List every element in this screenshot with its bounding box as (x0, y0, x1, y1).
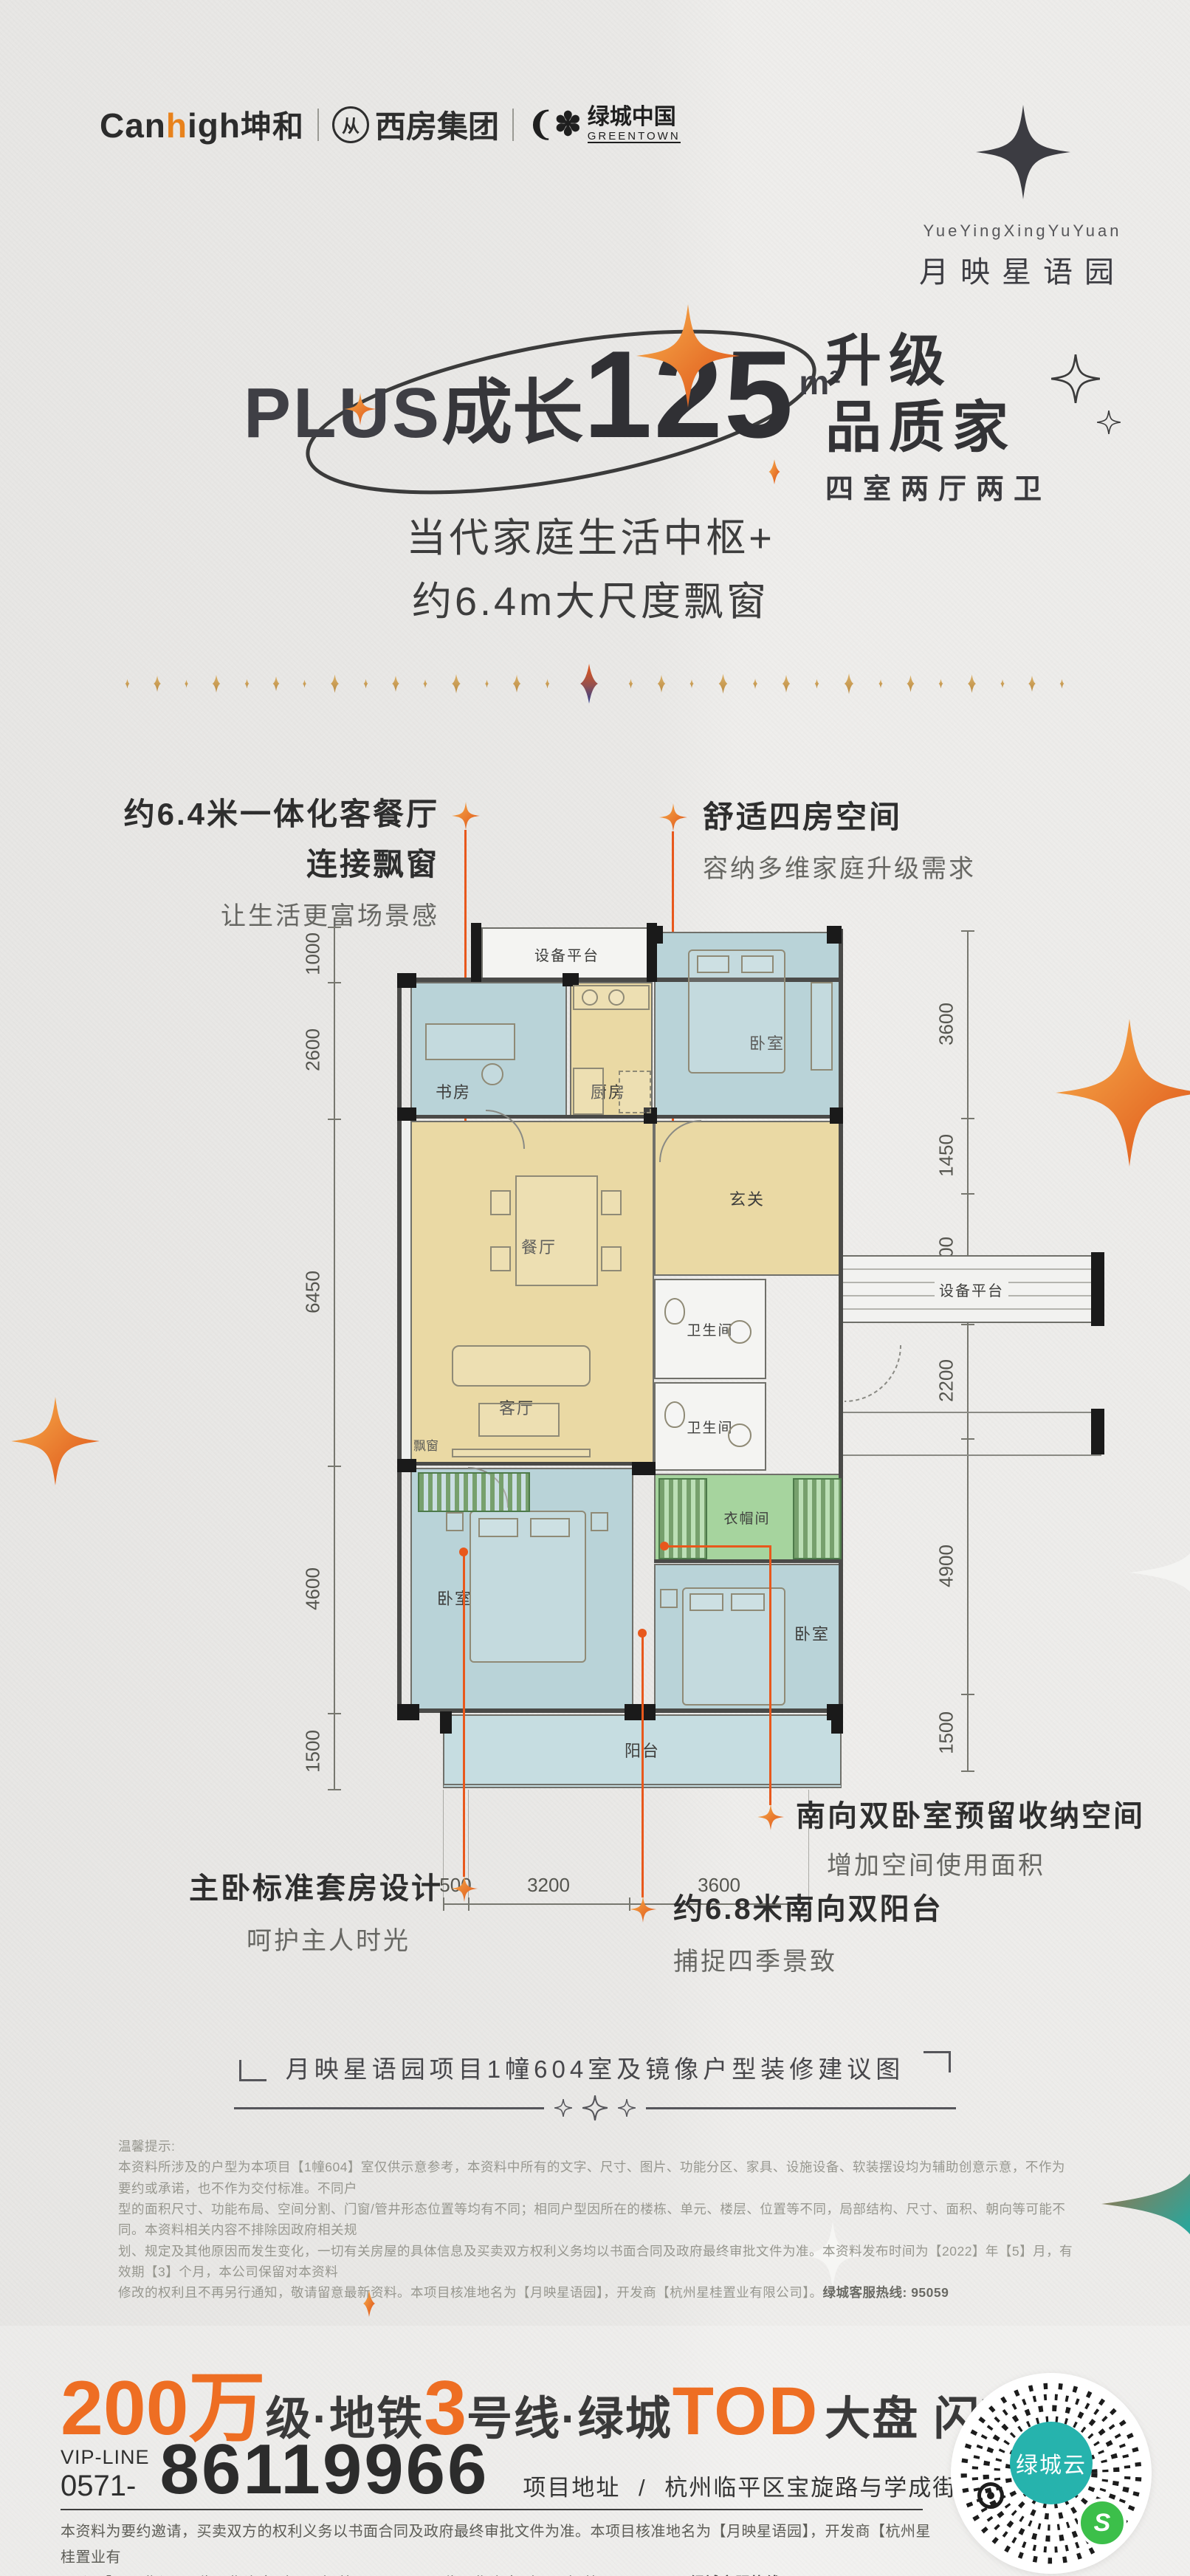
project-star-icon (976, 105, 1070, 199)
dim-line-left (334, 927, 335, 1790)
brand3-en: GREENTOWN (588, 131, 681, 143)
brand3-cn: 绿城中国 (588, 106, 681, 128)
gold-diamond-icon (483, 674, 491, 693)
star-icon (1101, 2089, 1190, 2318)
pillow-icon (689, 1593, 723, 1611)
vip-prefix: 0571- (61, 2470, 150, 2501)
dim-label: 6450 (302, 1271, 325, 1313)
room-label: 卧室 (437, 1586, 472, 1610)
phone-number: 86119966 (160, 2438, 489, 2501)
brand1-accent: h (166, 106, 188, 145)
gold-diamond-icon (902, 664, 919, 704)
room-label: 书房 (436, 1079, 471, 1103)
vip-line-block: VIP-LINE 0571- (61, 2447, 150, 2501)
dim-label: 4900 (935, 1545, 958, 1587)
annotation-title2: 连接飘窗 (66, 849, 439, 880)
dim-label: 1450 (935, 1134, 958, 1177)
gold-diamond-icon (936, 672, 946, 695)
annotation-storage: 南向双卧室预留收纳空间 增加空间使用面积 (796, 1802, 1145, 1878)
notice-hotline: 绿城客服热线: 95059 (823, 2285, 949, 2300)
room-label: 玄关 (729, 1186, 765, 1210)
room-label: 卧室 (794, 1621, 830, 1645)
gold-diamond-icon (149, 664, 165, 703)
gold-diamond-icon (839, 659, 859, 708)
pillow-icon (731, 1593, 765, 1611)
wardrobe-icon (418, 1472, 530, 1512)
sink-icon (608, 989, 625, 1006)
legal-line: 本资料为要约邀请，买卖双方的权利义务以书面合同及政府最终审批文件为准。本项目核准… (61, 2519, 939, 2571)
gold-diamond-icon (300, 674, 309, 693)
annotation-connector (769, 1545, 771, 1805)
pillow-icon (697, 955, 729, 973)
nightstand-icon (591, 1512, 608, 1531)
star-icon (1129, 1491, 1190, 1654)
annotation-title: 南向双卧室预留收纳空间 (796, 1802, 1145, 1831)
diamond-icon (630, 1896, 656, 1923)
chair-icon (490, 1190, 511, 1215)
address-separator: / (639, 2475, 647, 2501)
notice-line: 型的面积尺寸、功能布局、空间分割、门窗/管井形态位置等均有不同；相同户型因所在的… (118, 2199, 1078, 2241)
brand1-post: igh (188, 106, 241, 145)
brand1-cn: 坤和 (241, 109, 304, 144)
gold-diamond-icon (626, 673, 636, 695)
greentown-logo: ❨✽ 绿城中国 GREENTOWN (527, 106, 681, 143)
xifang-logo: 从 西房集团 (332, 102, 499, 147)
hero-title: PLUS 成长 125 m² (244, 323, 836, 466)
star-outline-icon (1051, 354, 1100, 403)
dim-label: 3200 (527, 1874, 570, 1897)
annotation-master: 主卧标准套房设计 呵护主人时光 (103, 1874, 443, 1954)
brand-bar: Canhigh坤和 从 西房集团 ❨✽ 绿城中国 GREENTOWN (100, 102, 681, 147)
annotation-title: 主卧标准套房设计 (103, 1874, 443, 1903)
room-label: 设备平台 (935, 1277, 1008, 1302)
greentown-icon: ❨✽ (527, 106, 582, 143)
xifang-circle-icon: 从 (332, 106, 369, 143)
diamond-icon (451, 1875, 478, 1902)
canhigh-logo: Canhigh坤和 (100, 102, 304, 147)
dim-label: 2600 (302, 1028, 325, 1071)
divider (512, 109, 514, 141)
dim-label: 1500 (935, 1711, 958, 1754)
annotation-connector (642, 1633, 644, 1897)
notice-line-text: 修改的权利且不再另行通知，敬请留意最新资料。本项目核准地名为【月映星语园】，开发… (118, 2285, 823, 2300)
pillow-icon (478, 1518, 518, 1537)
subtitle-line2: 约6.4m大尺度飘窗 (310, 570, 871, 633)
toilet-icon (664, 1298, 685, 1325)
diamond-icon (757, 1804, 784, 1830)
gold-diamond-icon (326, 662, 344, 706)
diamond-icon (659, 803, 687, 831)
address-label: 项目地址 (523, 2475, 620, 2501)
dim-label: 3600 (935, 1003, 958, 1045)
dim-label: 1500 (302, 1730, 325, 1773)
vip-label: VIP-LINE (61, 2447, 150, 2467)
qr-position-ring (977, 2482, 1004, 2509)
door-arc (484, 1109, 526, 1150)
star-icon (1056, 1019, 1190, 1167)
project-name-cn: 月映星语园 (856, 248, 1189, 291)
gold-diamond-icon (687, 673, 696, 694)
project-name-en: YueYingXingYuYuan (856, 221, 1189, 241)
annotation-desc: 让生活更富场景感 (66, 904, 439, 929)
gold-diamond-icon (182, 674, 190, 693)
gold-diamond-icon (777, 662, 795, 705)
star-icon (11, 1397, 100, 1486)
desk-icon (425, 1023, 515, 1060)
gold-diamond-icon (207, 662, 225, 705)
sink-icon (582, 989, 598, 1006)
star-icon (762, 459, 787, 484)
pillow-icon (530, 1518, 570, 1537)
star-outline-icon (1097, 411, 1121, 434)
tv-cabinet-icon (452, 1449, 591, 1457)
sink-icon (728, 1423, 752, 1447)
room-label: 飘窗 (413, 1435, 438, 1454)
room-label: 衣帽间 (723, 1508, 770, 1528)
annotation-desc: 捕捉四季景致 (673, 1949, 943, 1974)
door-arc (658, 1119, 703, 1164)
miniprogram-icon: S (1078, 2498, 1127, 2547)
footer-legal: 本资料为要约邀请，买卖双方的权利义务以书面合同及政府最终审批文件为准。本项目核准… (61, 2519, 939, 2576)
chair-icon (601, 1190, 622, 1215)
dim-label: 1000 (302, 932, 325, 975)
coffee-table-icon (478, 1403, 560, 1437)
gold-diamond-icon (269, 666, 283, 701)
bracket-right (924, 2051, 951, 2072)
room-label: 卫生间 (687, 1319, 733, 1339)
stove-icon (573, 1068, 604, 1115)
hero-plus: PLUS (244, 373, 441, 454)
door-arc (843, 1344, 902, 1403)
chair-icon (490, 1246, 511, 1271)
room-equipment-platform-right: 设备平台 (842, 1255, 1101, 1323)
sofa-icon (452, 1345, 591, 1387)
gold-diamond-icon (543, 673, 552, 695)
entry-walkway (842, 1412, 1101, 1456)
hero-right-line1: 升级 (825, 334, 1051, 390)
gold-diamond-icon (508, 663, 526, 704)
wardrobe-icon (793, 1478, 842, 1559)
hero-right-block: 升级 品质家 四室两厅两卫 (825, 334, 1051, 504)
notice-line: 修改的权利且不再另行通知，敬请留意最新资料。本项目核准地名为【月映星语园】，开发… (118, 2282, 1078, 2303)
gold-diamond-icon (361, 673, 371, 695)
gold-diamond-icon (123, 673, 132, 695)
toilet-icon (664, 1401, 685, 1428)
hero-grow: 成长 (441, 355, 583, 458)
caption-row: 月映星语园项目1幢604室及镜像户型装修建议图 (0, 2050, 1190, 2085)
chair-icon (481, 1063, 503, 1085)
brand1-pre: Can (100, 106, 166, 145)
room-label: 设备平台 (534, 944, 599, 965)
notice-block: 温馨提示: 本资料所涉及的户型为本项目【1幢604】室仅供示意参考，本资料中所有… (118, 2136, 1078, 2304)
hero-right-line2: 品质家 (825, 400, 1051, 456)
annotation-desc: 呵护主人时光 (103, 1928, 443, 1954)
footer-divider (61, 2509, 923, 2510)
wardrobe-icon (811, 982, 833, 1071)
notice-line: 划、规定及其他原因而发生变化，一切有关房屋的具体信息及买卖双方权利义务均以书面合… (118, 2241, 1078, 2283)
gold-diamond-icon (713, 660, 733, 707)
gold-diamond-icon (963, 662, 981, 706)
notice-label: 温馨提示: (118, 2136, 1078, 2157)
poster-page: Canhigh坤和 从 西房集团 ❨✽ 绿城中国 GREENTOWN YueYi… (0, 0, 1190, 2576)
gold-diamond-icon (421, 673, 430, 694)
dining-table-icon (515, 1175, 598, 1286)
divider (317, 109, 319, 141)
nightstand-icon (446, 1512, 464, 1531)
annotation-desc: 容纳多维家庭升级需求 (703, 856, 976, 882)
dim-label: 4600 (302, 1567, 325, 1610)
bracket-left (239, 2060, 266, 2081)
dim-label: 2200 (935, 1359, 958, 1402)
annotation-connector (664, 1545, 771, 1548)
annotation-connector (463, 1552, 465, 1877)
diamond-icon (452, 802, 480, 830)
qr-center-label: 绿城云 (1016, 2447, 1087, 2479)
annotation-title: 约6.4米一体化客餐厅 (66, 799, 439, 830)
gradient-diamond-icon (569, 636, 609, 731)
room-label: 卫生间 (687, 1417, 733, 1437)
brand2-label: 西房集团 (375, 102, 499, 147)
subtitle-line1: 当代家庭生活中枢+ (310, 506, 871, 570)
sink-icon (728, 1320, 752, 1344)
pillow-icon (741, 955, 774, 973)
gold-diamond-icon (388, 664, 404, 703)
qr-center-badge: 绿城云 (1010, 2422, 1093, 2504)
caption-title: 月映星语园项目1幢604室及镜像户型装修建议图 (286, 2050, 904, 2085)
qr-code: 绿城云 S (951, 2373, 1152, 2574)
hero-subtitle: 当代家庭生活中枢+ 约6.4m大尺度飘窗 (310, 506, 871, 634)
gold-diamond-icon (242, 673, 252, 695)
annotation-title: 约6.8米南向双阳台 (673, 1895, 943, 1924)
gold-diamond-icon (1024, 664, 1040, 703)
gold-diamond-icon (750, 671, 760, 696)
star-icon (344, 393, 376, 425)
gold-diamond-icon (998, 673, 1007, 694)
annotation-title: 舒适四房空间 (703, 802, 976, 833)
legal-line: 限公司】，预售证号: 临平售许字（2022）第ZJ00139号，临平售许字（20… (61, 2571, 939, 2576)
annotation-bedrooms: 舒适四房空间 容纳多维家庭升级需求 (703, 802, 976, 882)
hero-right-sub: 四室两厅两卫 (825, 475, 1051, 504)
fridge-space-icon (619, 1071, 651, 1113)
annotation-dining: 约6.4米一体化客餐厅 连接飘窗 让生活更富场景感 (66, 799, 439, 929)
star-divider (59, 633, 1129, 734)
dim-line-right (967, 930, 969, 1772)
star-icon (636, 304, 740, 408)
annotation-balcony: 约6.8米南向双阳台 捕捉四季景致 (673, 1895, 943, 1974)
annotation-desc: 增加空间使用面积 (796, 1853, 1145, 1878)
nightstand-icon (660, 1589, 678, 1608)
contact-row: VIP-LINE 0571- 86119966 项目地址 / 杭州临平区宝旋路与… (61, 2438, 1079, 2501)
chair-icon (601, 1246, 622, 1271)
gold-diamond-icon (876, 673, 885, 694)
notice-line: 本资料所涉及的户型为本项目【1幢604】室仅供示意参考，本资料中所有的文字、尺寸… (118, 2157, 1078, 2199)
gold-diamond-icon (447, 661, 466, 707)
gold-diamond-icon (1057, 673, 1067, 695)
gold-diamond-icon (653, 663, 670, 704)
gold-diamond-icon (812, 673, 822, 695)
caption-divider (0, 2095, 1190, 2120)
